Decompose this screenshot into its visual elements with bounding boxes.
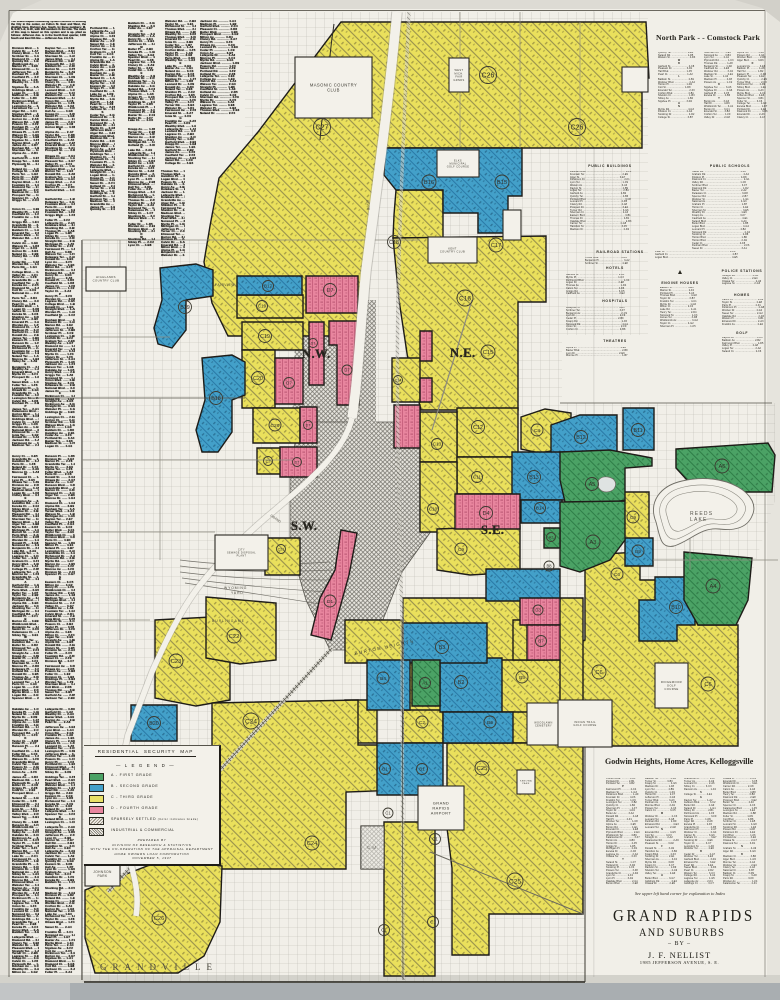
svg-text:C26: C26: [154, 916, 165, 922]
svg-text:C8: C8: [534, 428, 541, 434]
svg-text:B1: B1: [382, 767, 388, 772]
svg-text:COUNTRY CLUB: COUNTRY CLUB: [440, 250, 465, 254]
svg-text:S.E.: S.E.: [481, 523, 505, 537]
svg-text:B13: B13: [529, 475, 539, 481]
svg-text:B19: B19: [180, 305, 190, 311]
svg-text:A5: A5: [589, 482, 596, 488]
svg-text:A2: A2: [549, 535, 554, 539]
svg-text:C9: C9: [458, 547, 465, 553]
svg-text:PARK: PARK: [97, 874, 108, 878]
svg-text:COUNTRY CLUB: COUNTRY CLUB: [93, 279, 120, 283]
svg-text:C14: C14: [395, 378, 402, 382]
svg-text:D4: D4: [483, 511, 490, 517]
svg-text:FAIRVIEW: FAIRVIEW: [215, 283, 235, 287]
svg-text:C9: C9: [630, 515, 637, 521]
svg-text:B7: B7: [538, 639, 544, 644]
svg-text:A4: A4: [709, 584, 717, 590]
svg-text:D7: D7: [295, 460, 300, 464]
svg-text:C10: C10: [429, 507, 438, 512]
svg-text:C11: C11: [473, 475, 481, 480]
svg-text:D1: D1: [327, 599, 334, 605]
svg-text:C24: C24: [245, 718, 257, 725]
svg-text:C20: C20: [253, 376, 263, 382]
svg-text:BURLINGAME: BURLINGAME: [212, 619, 245, 623]
svg-text:C12: C12: [473, 425, 483, 431]
svg-text:B14: B14: [536, 506, 545, 511]
svg-text:C19: C19: [260, 334, 270, 340]
svg-text:B8: B8: [546, 563, 552, 568]
svg-text:D7: D7: [306, 423, 311, 427]
svg-text:C2: C2: [266, 459, 271, 463]
svg-text:GOLF COURSE: GOLF COURSE: [447, 166, 470, 169]
svg-text:B9: B9: [635, 549, 641, 555]
svg-text:C1: C1: [432, 837, 438, 842]
svg-text:PLANT: PLANT: [237, 554, 247, 557]
svg-text:B2: B2: [458, 680, 465, 686]
svg-text:KENOWA: KENOWA: [520, 779, 532, 782]
svg-text:B5: B5: [519, 675, 525, 681]
svg-text:PARK: PARK: [522, 782, 530, 785]
svg-text:S.W.: S.W.: [291, 519, 318, 533]
svg-text:GOLF COURSE: GOLF COURSE: [573, 723, 596, 727]
svg-text:B3: B3: [439, 645, 446, 651]
svg-text:C16: C16: [459, 295, 471, 302]
svg-text:N.E.: N.E.: [450, 346, 476, 360]
svg-text:MASONIC COUNTRY: MASONIC COUNTRY: [310, 82, 357, 87]
svg-text:C1: C1: [385, 810, 391, 815]
svg-text:C1: C1: [430, 920, 436, 925]
svg-text:C24: C24: [307, 841, 318, 847]
svg-text:C19: C19: [258, 304, 267, 309]
svg-text:WYOMING: WYOMING: [224, 586, 247, 590]
svg-text:C1: C1: [381, 928, 387, 933]
svg-text:COURSE: COURSE: [664, 687, 678, 691]
svg-text:D7: D7: [344, 367, 350, 372]
svg-text:GRANDVILLE: GRANDVILLE: [100, 962, 218, 972]
svg-text:AIRPORT: AIRPORT: [431, 810, 452, 815]
svg-text:B12: B12: [576, 435, 586, 441]
svg-text:B11: B11: [633, 428, 642, 434]
svg-text:CEMETERY: CEMETERY: [535, 724, 552, 727]
svg-text:D3: D3: [535, 607, 541, 612]
svg-text:A6: A6: [718, 464, 725, 470]
svg-text:C25: C25: [509, 878, 521, 885]
svg-text:A3: A3: [589, 540, 596, 546]
svg-text:C23: C23: [171, 659, 182, 665]
svg-text:C15: C15: [483, 350, 494, 356]
svg-text:CLUB: CLUB: [327, 88, 340, 93]
svg-text:C20: C20: [270, 423, 279, 429]
svg-text:N.W.: N.W.: [302, 347, 331, 361]
svg-text:C6: C6: [704, 682, 711, 688]
svg-text:B4: B4: [380, 676, 386, 682]
svg-text:C17: C17: [491, 243, 502, 249]
svg-text:C13: C13: [433, 442, 442, 447]
svg-text:C22: C22: [229, 634, 240, 640]
svg-text:C6: C6: [595, 670, 602, 676]
svg-text:B10: B10: [671, 605, 681, 611]
svg-text:B15: B15: [497, 180, 507, 186]
svg-text:D7: D7: [286, 381, 292, 386]
svg-text:C25: C25: [477, 766, 488, 772]
svg-text:D7: D7: [311, 341, 316, 345]
svg-text:D7: D7: [327, 288, 334, 294]
svg-text:C2: C2: [419, 720, 426, 726]
svg-text:B18: B18: [211, 396, 221, 402]
svg-text:B1: B1: [419, 767, 425, 772]
svg-text:C26: C26: [571, 125, 584, 132]
svg-text:C26: C26: [482, 73, 495, 80]
svg-text:C18: C18: [389, 240, 399, 246]
svg-text:A1: A1: [422, 681, 428, 686]
svg-text:B20: B20: [149, 721, 159, 727]
svg-text:B16: B16: [424, 180, 434, 186]
svg-text:LAKE: LAKE: [690, 517, 708, 523]
svg-text:C6: C6: [614, 572, 621, 578]
svg-text:GRNDS: GRNDS: [453, 78, 464, 82]
svg-text:C21: C21: [278, 547, 285, 551]
svg-text:YARD: YARD: [231, 591, 244, 595]
svg-text:C27: C27: [316, 125, 329, 132]
svg-text:B17: B17: [264, 284, 273, 289]
svg-text:B6: B6: [487, 720, 493, 726]
